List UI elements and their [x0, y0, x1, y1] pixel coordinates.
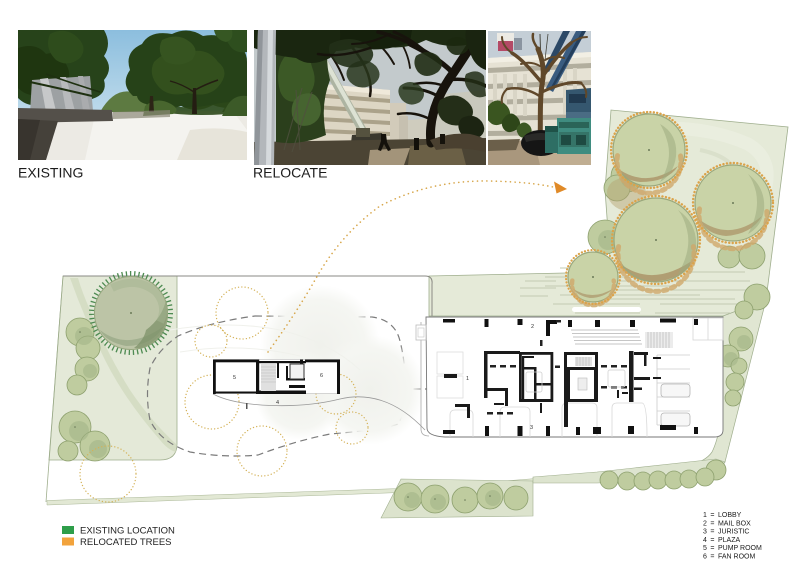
svg-text:3 = JURISTIC: 3 = JURISTIC: [703, 529, 749, 536]
svg-text:6 = FAN ROOM: 6 = FAN ROOM: [703, 554, 755, 561]
svg-text:5: 5: [233, 375, 236, 381]
svg-text:RELOCATED TREES: RELOCATED TREES: [80, 537, 172, 548]
svg-text:4: 4: [276, 400, 279, 406]
svg-text:1: 1: [466, 376, 469, 382]
svg-text:5 = PUMP ROOM: 5 = PUMP ROOM: [703, 545, 762, 552]
svg-text:2 = MAIL BOX: 2 = MAIL BOX: [703, 520, 751, 527]
svg-text:EXISTING LOCATION: EXISTING LOCATION: [80, 526, 175, 537]
svg-text:1 = LOBBY: 1 = LOBBY: [703, 512, 742, 519]
svg-text:6: 6: [320, 373, 323, 379]
svg-text:2: 2: [531, 324, 534, 330]
svg-text:RELOCATE: RELOCATE: [253, 165, 327, 181]
svg-text:3: 3: [530, 425, 533, 431]
svg-text:4 = PLAZA: 4 = PLAZA: [703, 537, 740, 544]
svg-text:EXISTING: EXISTING: [18, 165, 83, 181]
